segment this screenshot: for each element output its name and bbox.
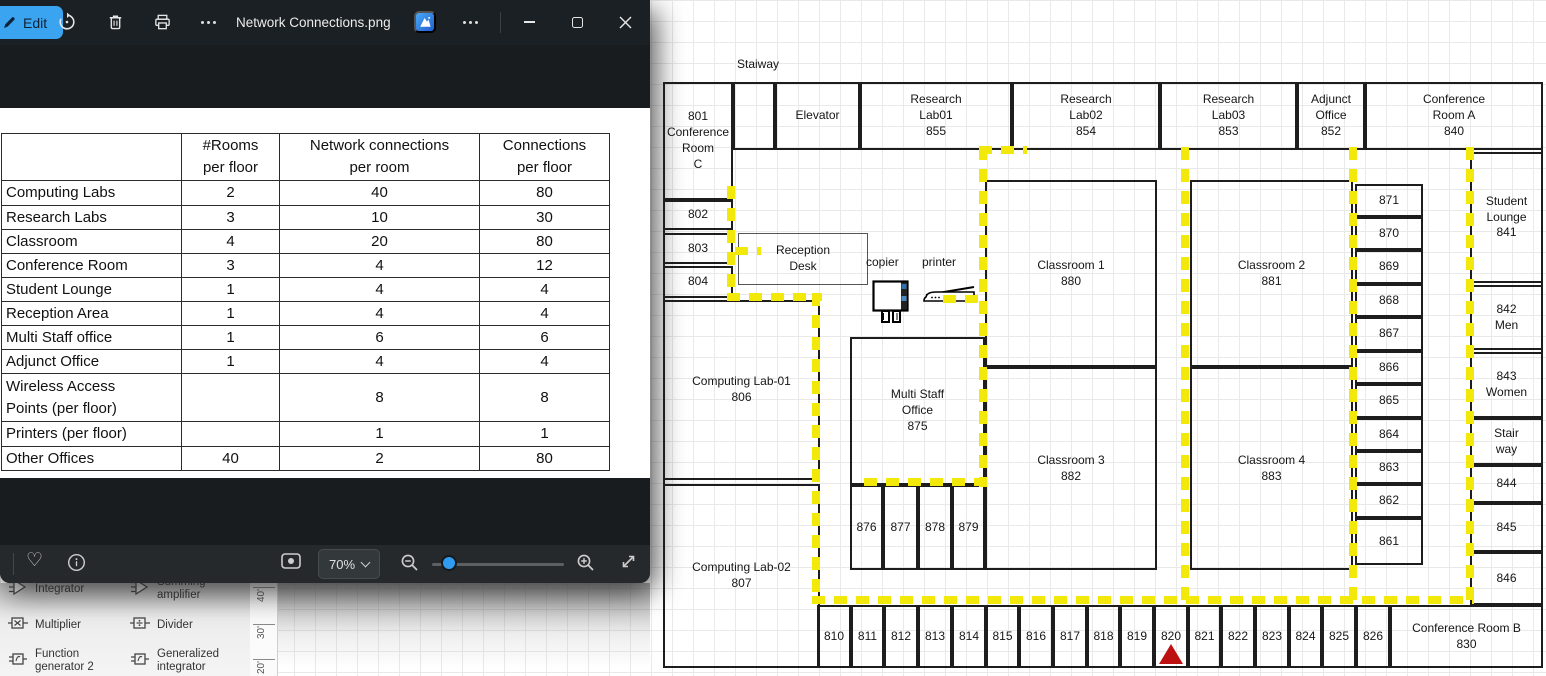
table-row-label: Printers (per floor) [2,422,182,447]
room-861: 861 [1355,518,1423,565]
shapes-stencil-panel: IntegratorSumming amplifierMultiplierDiv… [0,583,250,676]
room-826: 826 [1356,605,1390,668]
stencil-shape-label: Generalized integrator [157,648,248,674]
room-822: 822 [1221,605,1255,668]
table-cell: 30 [480,206,610,230]
room-classroom-2-881: Classroom 2 881 [1190,180,1353,367]
room-863: 863 [1355,451,1423,484]
cable-segment-11 [1349,147,1357,604]
room-842-men: 842 Men [1470,285,1543,350]
room-811: 811 [851,605,884,668]
stencil-shape-label: Divider [157,619,193,632]
maximize-button[interactable] [566,11,588,33]
table-row-label: Conference Room [2,254,182,278]
stencil-shape-label: Integrator [35,583,84,595]
table-cell: 1 [182,278,280,302]
table-row-label: Student Lounge [2,278,182,302]
room-865: 865 [1355,384,1423,418]
room-812: 812 [884,605,918,668]
toolbar-separator [13,553,14,575]
room-864: 864 [1355,418,1423,451]
room-844: 844 [1470,465,1543,503]
ruler-mark-label: 30' [256,626,267,639]
minimize-button[interactable] [518,11,540,33]
table-row-label: Adjunct Office [2,350,182,374]
stencil-shape-multiplier[interactable]: Multiplier [8,607,130,643]
room-research-lab03-853: Research Lab03 853 [1160,82,1297,150]
photo-toolbar: ♡ 70% [0,545,650,583]
room-866: 866 [1355,351,1423,384]
cable-segment-8 [979,146,1027,154]
table-cell: 3 [182,206,280,230]
table-cell: 4 [280,278,480,302]
ruler-tick [253,624,275,625]
multiplier-icon [8,614,28,637]
cable-segment-12 [1466,147,1474,604]
table-row-label: Multi Staff office [2,326,182,350]
room-multi-staff-office-875: Multi Staff Office 875 [850,337,985,485]
zoom-level-value: 70% [329,557,355,572]
room-803: 803 [663,233,733,264]
table-cell: 1 [182,326,280,350]
room-elevator: Elevator [775,82,860,150]
table-header-2: Network connections per room [280,134,480,181]
table-cell: 4 [280,254,480,278]
table-cell: 4 [280,302,480,326]
room-813: 813 [918,605,952,668]
print-icon[interactable] [151,11,173,33]
table-cell: 8 [280,374,480,422]
cable-segment-1 [727,186,735,300]
zoom-in-icon[interactable] [576,553,596,573]
room-816: 816 [1019,605,1053,668]
room-819: 819 [1120,605,1154,668]
table-row-label: Computing Labs [2,181,182,206]
room-824: 824 [1289,605,1322,668]
designer-icon[interactable] [414,11,436,33]
table-cell: 1 [280,422,480,447]
stencil-shape-summing-amplifier[interactable]: Summing amplifier [130,583,248,607]
table-row-label: Research Labs [2,206,182,230]
table-cell: 4 [182,230,280,254]
table-cell: 8 [480,374,610,422]
cable-segment-3 [735,247,761,255]
table-cell: 80 [480,447,610,471]
room-815: 815 [986,605,1019,668]
favorite-heart-icon[interactable]: ♡ [26,551,43,571]
edit-button-label: Edit [23,15,47,31]
room-823: 823 [1255,605,1289,668]
location-marker-triangle [1159,644,1183,664]
table-cell: 80 [480,230,610,254]
stencil-shape-label: Summing amplifier [157,583,248,602]
room-843-women: 843 Women [1470,352,1543,418]
room-846: 846 [1470,552,1543,605]
room-stair-way: Stair way [1470,418,1543,465]
frame-image-icon[interactable] [281,553,301,569]
table-cell: 6 [280,326,480,350]
room-868: 868 [1355,284,1423,317]
cable-segment-4 [812,293,820,604]
table-cell [182,374,280,422]
room-877: 877 [883,485,918,570]
table-cell: 1 [182,350,280,374]
stencil-shape-generalized-integrator[interactable]: Generalized integrator [130,643,248,676]
table-cell: 4 [480,350,610,374]
cable-segment-7 [864,478,987,486]
copier-icon [872,280,914,324]
label-copier: copier [866,255,899,269]
chevron-down-icon [361,557,371,567]
room-802: 802 [663,200,733,230]
table-cell: 1 [480,422,610,447]
room-862: 862 [1355,484,1423,518]
titlebar: Edit Network Connections.png [0,0,650,45]
table-header-rowlabel [2,134,182,181]
stencil-shape-integrator[interactable]: Integrator [8,583,130,607]
room-research-lab01-855: Research Lab01 855 [860,82,1012,150]
function-generator-2-icon [8,650,28,673]
room-821: 821 [1188,605,1221,668]
edit-button[interactable]: Edit [0,6,63,39]
table-cell [182,422,280,447]
table-row-label: Classroom [2,230,182,254]
more-menu-icon[interactable] [459,11,481,33]
stencil-shape-label: Function generator 2 [35,648,130,674]
room-research-lab02-854: Research Lab02 854 [1012,82,1160,150]
stencil-shape-label: Multiplier [35,619,81,632]
table-cell: 40 [182,447,280,471]
rotate-icon[interactable] [56,11,78,33]
label-staiway: Staiway [737,57,779,71]
room-804: 804 [663,266,733,298]
table-header-3: Connections per floor [480,134,610,181]
table-header-1: #Rooms per floor [182,134,280,181]
window-drop-shadow [278,583,650,676]
room-818: 818 [1087,605,1120,668]
more-options-icon[interactable] [197,11,219,33]
room-845: 845 [1470,503,1543,552]
room-unlabeled [733,82,775,150]
room-817: 817 [1053,605,1087,668]
table-cell: 80 [480,181,610,206]
edit-pen-icon [2,16,16,30]
table-cell: 3 [182,254,280,278]
room-867: 867 [1355,317,1423,351]
zoom-slider-thumb[interactable] [441,555,457,571]
ruler-mark-label: 20' [256,661,267,674]
table-cell: 20 [280,230,480,254]
stencil-grid: IntegratorSumming amplifierMultiplierDiv… [8,583,250,676]
titlebar-separator [500,12,501,33]
room-801-conference-room-c: 801 Conference Room C [663,82,733,200]
room-computing-lab-01-806: Computing Lab-01 806 [663,300,820,480]
room-conference-room-a-840: Conference Room A 840 [1365,82,1543,150]
room-869: 869 [1355,250,1423,284]
integrator-icon [8,583,28,601]
room-814: 814 [952,605,986,668]
table-cell: 40 [280,181,480,206]
table-cell: 6 [480,326,610,350]
close-button[interactable] [614,11,636,33]
table-cell: 10 [280,206,480,230]
cable-segment-5 [812,596,1474,604]
network-connections-table: #Rooms per floorNetwork connections per … [1,133,610,471]
photo-image: #Rooms per floorNetwork connections per … [0,108,650,478]
ruler-mark-label: 40' [256,589,267,602]
table-cell: 2 [280,447,480,471]
table-row-label: Reception Area [2,302,182,326]
zoom-level-select[interactable]: 70% [318,549,380,579]
delete-icon[interactable] [104,11,126,33]
stencil-shape-function-generator-2[interactable]: Function generator 2 [8,643,130,676]
room-conference-room-b-830: Conference Room B 830 [1390,605,1543,668]
room-classroom-4-883: Classroom 4 883 [1190,367,1353,570]
room-reception-desk: Reception Desk [738,233,868,285]
zoom-out-icon[interactable] [400,553,420,573]
room-classroom-1-880: Classroom 1 880 [985,180,1157,367]
ruler-tick [253,587,275,588]
table-cell: 12 [480,254,610,278]
table-cell: 4 [280,350,480,374]
room-825: 825 [1322,605,1356,668]
stencil-shape-divider[interactable]: Divider [130,607,248,643]
table-cell: 1 [182,302,280,326]
cable-segment-9 [943,295,985,303]
room-879: 879 [952,485,985,570]
cable-segment-10 [1181,147,1189,604]
table-row-label: Other Offices [2,447,182,471]
room-876: 876 [850,485,883,570]
room-classroom-3-882: Classroom 3 882 [985,367,1157,570]
table-row-label: Wireless Access Points (per floor) [2,374,182,422]
room-878: 878 [918,485,952,570]
label-printer: printer [922,255,956,269]
cable-segment-2 [727,293,822,301]
generalized-integrator-icon [130,650,150,673]
table-cell: 4 [480,302,610,326]
fullscreen-icon[interactable] [620,553,637,570]
vertical-ruler: 40'30'20' [250,583,278,676]
table-cell: 2 [182,181,280,206]
cable-segment-6 [979,147,987,487]
room-870: 870 [1355,217,1423,250]
ruler-tick [253,659,275,660]
room-computing-lab-02-807: Computing Lab-02 807 [663,484,820,668]
photos-app-window: Edit Network Connections.png #Rooms per … [0,0,650,583]
table-cell: 4 [480,278,610,302]
room-student-lounge-841: Student Lounge 841 [1470,152,1543,283]
window-title: Network Connections.png [236,15,391,30]
divider-icon [130,614,150,637]
room-871: 871 [1355,184,1423,217]
room-adjunct-office-852: Adjunct Office 852 [1297,82,1365,150]
info-icon[interactable] [67,553,86,572]
room-810: 810 [817,605,851,668]
summing-amplifier-icon [130,583,150,601]
